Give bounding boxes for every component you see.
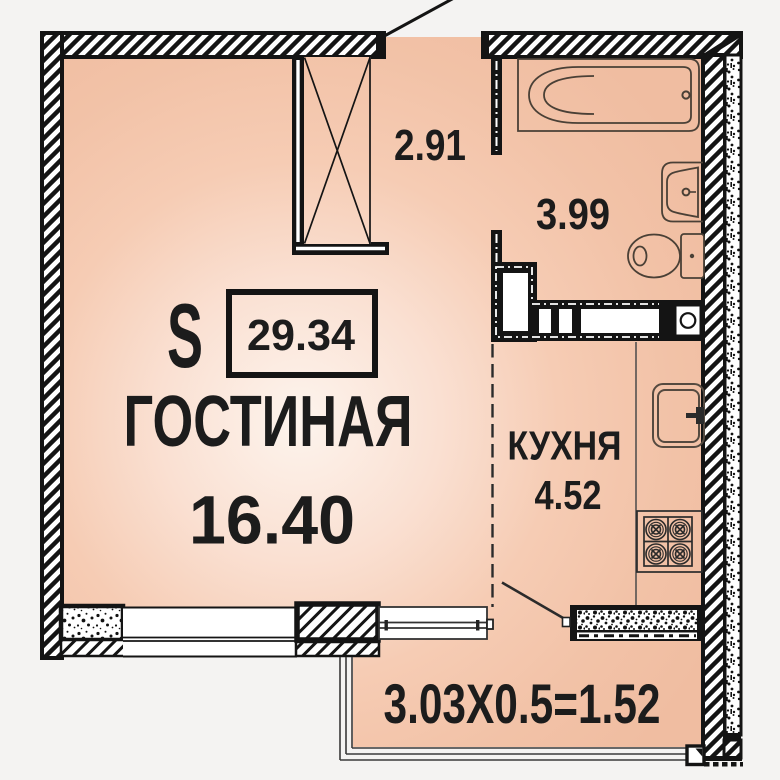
svg-text:S: S xyxy=(167,286,203,387)
svg-text:29.34: 29.34 xyxy=(247,311,356,360)
svg-text:16.40: 16.40 xyxy=(189,482,355,559)
svg-text:4.52: 4.52 xyxy=(535,472,602,518)
svg-text:3.99: 3.99 xyxy=(536,190,610,239)
svg-text:ГОСТИНАЯ: ГОСТИНАЯ xyxy=(124,382,413,462)
svg-text:КУХНЯ: КУХНЯ xyxy=(508,423,622,469)
svg-text:3.03X0.5=1.52: 3.03X0.5=1.52 xyxy=(384,672,661,735)
svg-text:2.91: 2.91 xyxy=(394,121,466,170)
